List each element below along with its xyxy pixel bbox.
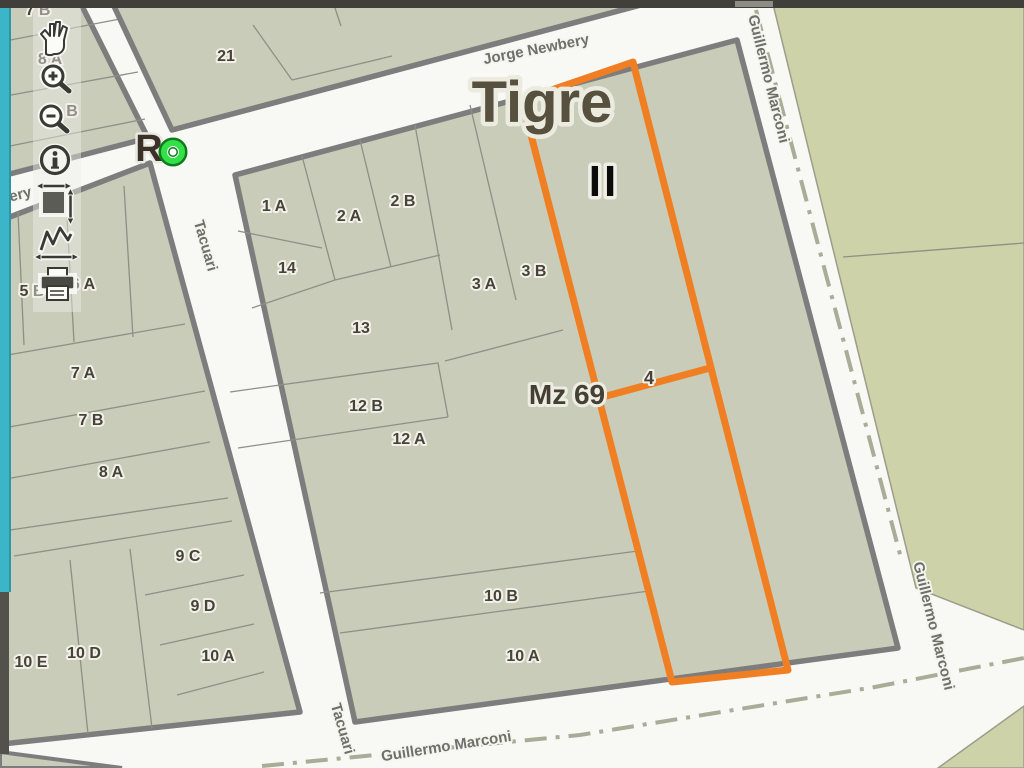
parcel-label: 10 A [506,648,540,665]
parcel-label: 10 A [201,648,235,665]
parcel-label: 9 D [191,598,216,615]
left-dark-edge [0,592,9,754]
parcel-label: 2 B [391,193,416,210]
parcel-label: 3 A [472,276,497,293]
left-scroll-edge-border [9,8,11,592]
zone-label: II [589,157,619,206]
parcel-label: 13 [352,320,370,337]
map-viewer-window: 7 B 8 A B 21 1 A 2 A 2 B 14 3 A 3 B 13 1… [0,0,1024,768]
parcel-label: 10 D [67,645,101,662]
parcel-label: 10 E [15,654,48,671]
marker-letter-label: R [135,128,162,170]
map-toolbar [33,8,81,312]
green-point-marker-icon [160,139,186,165]
parcel-label: 7 B [79,412,104,429]
manzana-label: Mz 69 [529,379,605,410]
parcel-label: 1 A [262,198,287,215]
highlight-parcel-label: 4 [644,368,654,388]
parcel-label: 12 A [392,431,426,448]
identify-tool-button[interactable] [42,147,69,174]
parcel-label: 2 A [337,208,362,225]
parcel-label: 7 A [71,365,96,382]
window-top-edge [0,0,1024,8]
parcel-label: 21 [217,48,235,65]
parcel-label: 10 B [484,588,518,605]
left-scroll-edge[interactable] [0,8,10,592]
parcel-label: 9 C [176,548,201,565]
parcel-label: 3 B [522,263,547,280]
parcel-label: 8 A [99,464,124,481]
info-icon [42,147,69,174]
map-canvas[interactable]: 7 B 8 A B 21 1 A 2 A 2 B 14 3 A 3 B 13 1… [0,0,1024,768]
window-top-edge-highlight [735,1,773,7]
parcel-label: 12 B [349,398,383,415]
parcel-label: 14 [278,260,296,277]
city-label: Tigre [472,70,613,135]
